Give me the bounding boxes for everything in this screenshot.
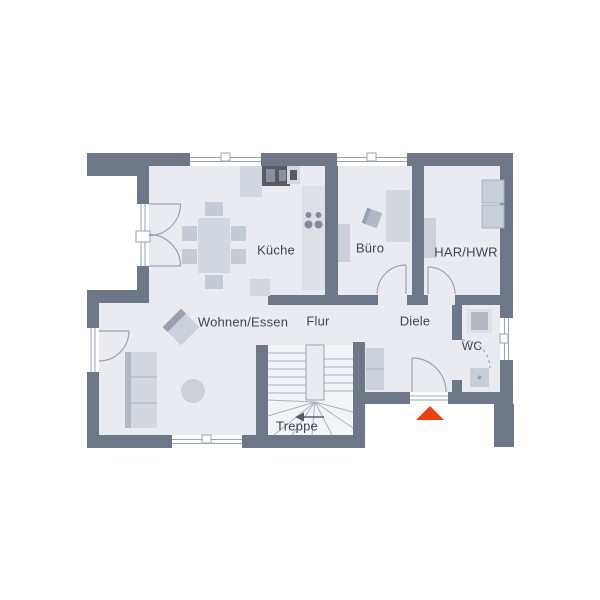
wall-diele-bottom-right <box>448 392 513 404</box>
room-label-buero: Büro <box>356 241 384 256</box>
floorplan-canvas: Küche Büro HAR/HWR Wohnen/Essen Flur Die… <box>0 0 600 600</box>
room-label-har-hwr: HAR/HWR <box>434 245 498 260</box>
wall-upper-left-a <box>137 166 149 204</box>
wall-wc-stub <box>452 380 462 392</box>
entrance-threshold <box>410 392 448 404</box>
window-buero <box>337 153 407 166</box>
window-dining <box>190 153 261 166</box>
diele-wardrobe <box>366 348 384 390</box>
wall-right-column <box>494 404 514 447</box>
wc-toilet <box>470 368 489 387</box>
coffee-table <box>181 379 205 403</box>
wall-under-kitchen <box>268 295 378 305</box>
wall-har-bottom <box>455 295 512 305</box>
room-label-wc: WC <box>462 339 482 353</box>
floorplan-drawing <box>0 0 600 600</box>
window-wc <box>500 318 513 360</box>
room-label-treppe: Treppe <box>276 419 318 434</box>
terrace-door-frame <box>87 328 99 372</box>
wall-stair-right <box>353 342 365 435</box>
room-label-diele: Diele <box>400 314 431 329</box>
wall-upper-left-b <box>137 266 149 292</box>
sofa <box>125 352 157 428</box>
dining-table <box>198 218 230 273</box>
wall-wc-left <box>452 305 462 340</box>
wall-step <box>87 290 149 303</box>
french-door-frame <box>136 204 150 266</box>
room-label-kueche: Küche <box>257 243 295 258</box>
wall-top <box>87 153 513 166</box>
wall-stair-left <box>256 345 268 435</box>
wall-buero-har <box>412 166 424 295</box>
room-label-flur: Flur <box>306 314 329 329</box>
window-bottom <box>172 435 242 448</box>
wall-left <box>87 303 99 448</box>
wall-stub-doors <box>407 295 428 305</box>
wall-kitchen <box>325 166 338 305</box>
room-label-wohnen-essen: Wohnen/Essen <box>198 315 288 330</box>
wall-diele-bottom-left <box>365 392 410 404</box>
entrance-arrow-icon <box>416 406 444 420</box>
wc-sink <box>467 309 492 333</box>
stair-core <box>306 345 324 400</box>
